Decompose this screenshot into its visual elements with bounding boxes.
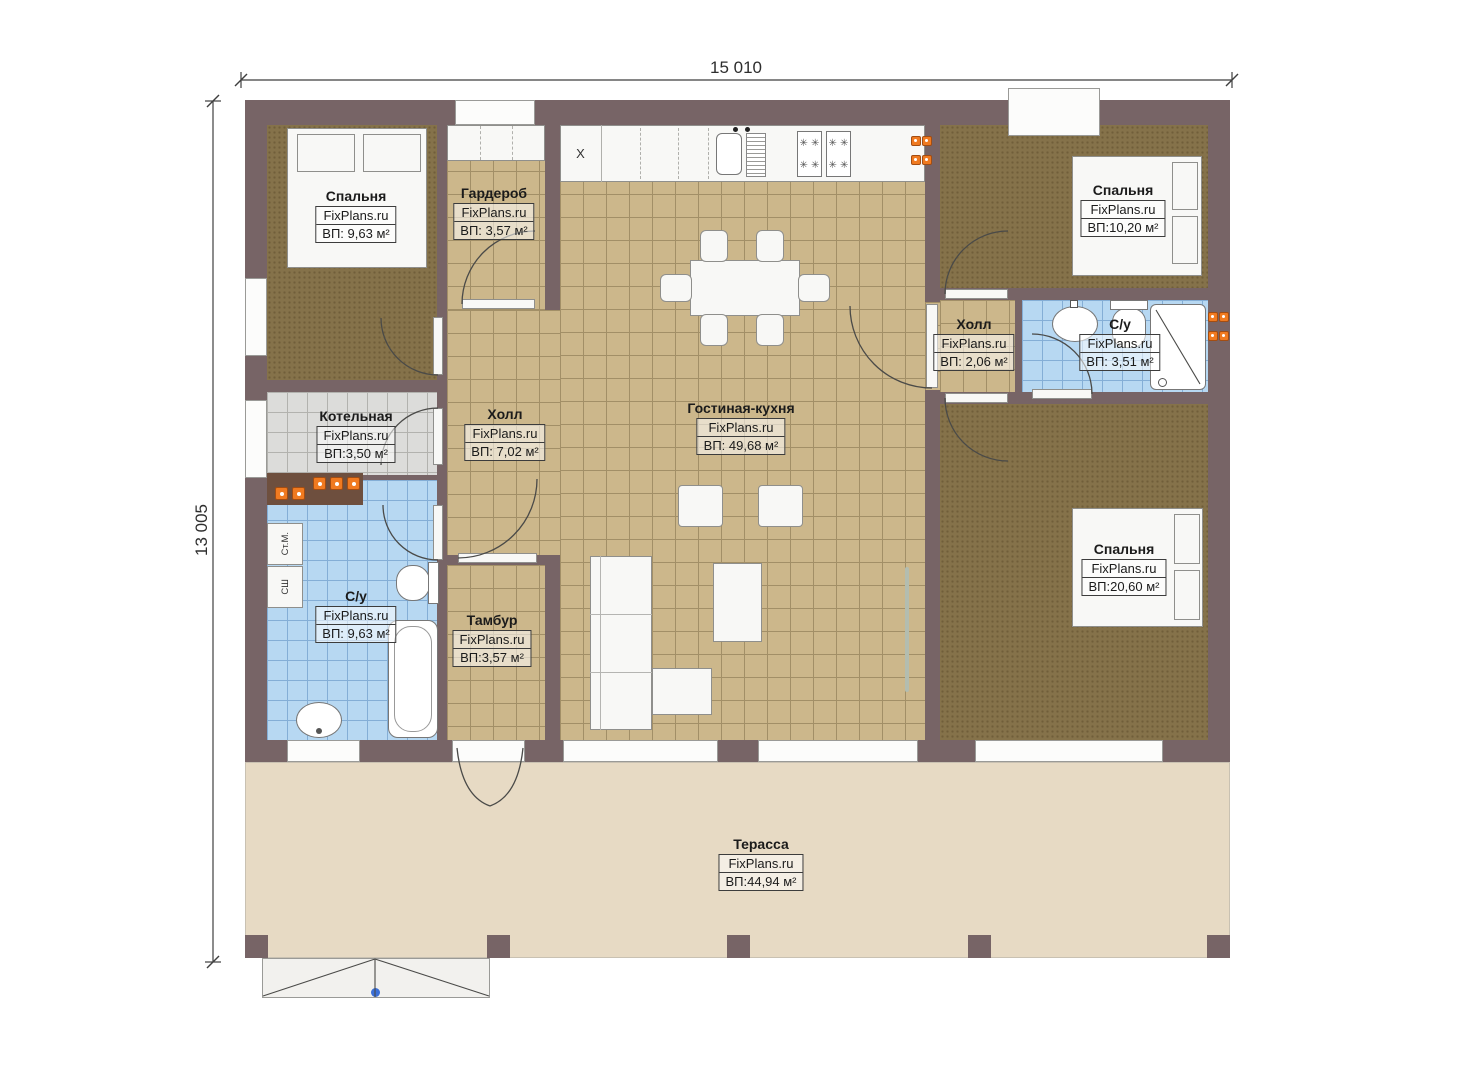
radiator-icon (922, 155, 932, 165)
pillow (297, 134, 355, 172)
room-label-terrace: Терасса FixPlans.ru ВП:44,94 м² (718, 836, 803, 891)
radiator-icon (347, 477, 360, 490)
terrace-post (245, 935, 268, 958)
sofa-cushion-line (590, 614, 652, 615)
shelf-divider (480, 126, 481, 160)
dimension-height-label: 13 005 (192, 504, 212, 556)
room-area: ВП: 3,57 м² (454, 222, 533, 239)
dryer-cabinet: СШ (267, 566, 303, 608)
brand-watermark: FixPlans.ru (317, 427, 394, 445)
chair (660, 274, 692, 302)
room-label-bathroom-right: С/у FixPlans.ru ВП: 3,51 м² (1079, 316, 1160, 371)
window (287, 740, 360, 762)
faucet-icon (733, 127, 738, 132)
terrace-post (727, 935, 750, 958)
brand-watermark: FixPlans.ru (316, 207, 395, 225)
stove-burners-icon: ✳✳✳✳ (797, 131, 822, 177)
room-label-bathroom-left: С/у FixPlans.ru ВП: 9,63 м² (315, 588, 396, 643)
radiator-icon (1208, 331, 1218, 341)
room-area: ВП:3,57 м² (453, 649, 530, 666)
armchair (678, 485, 723, 527)
pillow (1172, 162, 1198, 210)
room-name: Холл (464, 406, 545, 422)
drying-rack (746, 133, 766, 177)
washing-machine: Ст.М. (267, 523, 303, 565)
radiator-icon (911, 155, 921, 165)
room-label-living-kitchen: Гостиная-кухня FixPlans.ru ВП: 49,68 м² (687, 400, 794, 455)
window (563, 740, 718, 762)
cabinet-divider (678, 128, 679, 179)
room-area: ВП:20,60 м² (1082, 578, 1165, 595)
chair (798, 274, 830, 302)
window (758, 740, 918, 762)
room-area: ВП: 2,06 м² (934, 353, 1013, 370)
window (245, 400, 267, 478)
pillow (1172, 216, 1198, 264)
brand-watermark: FixPlans.ru (465, 425, 544, 443)
terrace-post (487, 935, 510, 958)
door-leaf (433, 317, 443, 375)
room-area: ВП: 7,02 м² (465, 443, 544, 460)
toilet-tank (1110, 300, 1148, 310)
pillow (363, 134, 421, 172)
room-name: Спальня (1080, 182, 1165, 198)
drain-icon (1158, 378, 1167, 387)
radiator-icon (911, 136, 921, 146)
dining-table (690, 260, 800, 316)
room-label-vestibule: Тамбур FixPlans.ru ВП:3,57 м² (452, 612, 531, 667)
brand-watermark: FixPlans.ru (934, 335, 1013, 353)
door-leaf (458, 553, 537, 563)
room-name: С/у (1079, 316, 1160, 332)
room-name: Тамбур (452, 612, 531, 628)
brand-watermark: FixPlans.ru (1080, 335, 1159, 353)
door-leaf (433, 505, 443, 560)
radiator-icon (330, 477, 343, 490)
fridge: X (560, 125, 602, 182)
room-name: Котельная (316, 408, 395, 424)
door-leaf (945, 393, 1008, 403)
window (245, 278, 267, 356)
cabinet-divider (640, 128, 641, 179)
sofa-cushion-line (590, 672, 652, 673)
brand-watermark: FixPlans.ru (453, 631, 530, 649)
entry-door (452, 740, 525, 762)
room-area: ВП: 3,51 м² (1080, 353, 1159, 370)
room-label-bedroom-tl: Спальня FixPlans.ru ВП: 9,63 м² (315, 188, 396, 243)
armchair (758, 485, 803, 527)
faucet-icon (745, 127, 750, 132)
toilet-tank (428, 562, 439, 604)
room-name: Гостиная-кухня (687, 400, 794, 416)
terrace-post (968, 935, 991, 958)
radiator-icon (313, 477, 326, 490)
room-name: Холл (933, 316, 1014, 332)
radiator-icon (922, 136, 932, 146)
kitchen-sink (716, 133, 742, 175)
cabinet-divider (708, 128, 709, 179)
room-area: ВП: 9,63 м² (316, 225, 395, 242)
dimension-width-label: 15 010 (710, 58, 762, 78)
room-label-boiler-room: Котельная FixPlans.ru ВП:3,50 м² (316, 408, 395, 463)
bathtub-inner (394, 626, 432, 732)
room-label-bedroom-br: Спальня FixPlans.ru ВП:20,60 м² (1081, 541, 1166, 596)
bay-window (1008, 88, 1100, 136)
chair (700, 314, 728, 346)
wardrobe-shelf (447, 125, 545, 161)
room-name: Терасса (718, 836, 803, 852)
radiator-icon (1219, 312, 1229, 322)
room-area: ВП:10,20 м² (1081, 219, 1164, 236)
sofa-chaise (652, 668, 712, 715)
brand-watermark: FixPlans.ru (1081, 201, 1164, 219)
door-leaf (1032, 389, 1092, 399)
door-leaf (433, 408, 443, 465)
terrace-post (1207, 935, 1230, 958)
room-label-bedroom-tr: Спальня FixPlans.ru ВП:10,20 м² (1080, 182, 1165, 237)
kitchen-counter (560, 125, 925, 182)
drain-icon (316, 728, 322, 734)
curtain (905, 567, 909, 692)
toilet (396, 565, 430, 601)
room-label-hall-center: Холл FixPlans.ru ВП: 7,02 м² (464, 406, 545, 461)
faucet-icon (1070, 300, 1078, 308)
chair (756, 230, 784, 262)
room-area: ВП: 9,63 м² (316, 625, 395, 642)
shelf-divider (512, 126, 513, 160)
room-area: ВП: 49,68 м² (698, 437, 785, 454)
room-label-hall-right: Холл FixPlans.ru ВП: 2,06 м² (933, 316, 1014, 371)
door-leaf (462, 299, 535, 309)
brand-watermark: FixPlans.ru (454, 204, 533, 222)
room-name: Гардероб (453, 185, 534, 201)
brand-watermark: FixPlans.ru (698, 419, 785, 437)
pillow (1174, 570, 1200, 620)
brand-watermark: FixPlans.ru (719, 855, 802, 873)
pillow (1174, 514, 1200, 564)
step-marker-icon (371, 988, 380, 997)
chair (756, 314, 784, 346)
coffee-table (713, 563, 762, 642)
sofa-cushion-line (600, 556, 601, 730)
room-name: С/у (315, 588, 396, 604)
stove-burners-icon: ✳✳✳✳ (826, 131, 851, 177)
room-area: ВП:3,50 м² (317, 445, 394, 462)
room-area: ВП:44,94 м² (719, 873, 802, 890)
room-label-wardrobe: Гардероб FixPlans.ru ВП: 3,57 м² (453, 185, 534, 240)
room-name: Спальня (315, 188, 396, 204)
radiator-icon (1219, 331, 1229, 341)
floor-plan-canvas: X ✳✳✳✳ ✳✳✳✳ Ст.М. СШ (0, 0, 1474, 1080)
brand-watermark: FixPlans.ru (1082, 560, 1165, 578)
window (975, 740, 1163, 762)
radiator-icon (1208, 312, 1218, 322)
radiator-icon (292, 487, 305, 500)
door-leaf (945, 289, 1008, 299)
chair (700, 230, 728, 262)
radiator-icon (275, 487, 288, 500)
window (455, 100, 535, 125)
brand-watermark: FixPlans.ru (316, 607, 395, 625)
room-name: Спальня (1081, 541, 1166, 557)
